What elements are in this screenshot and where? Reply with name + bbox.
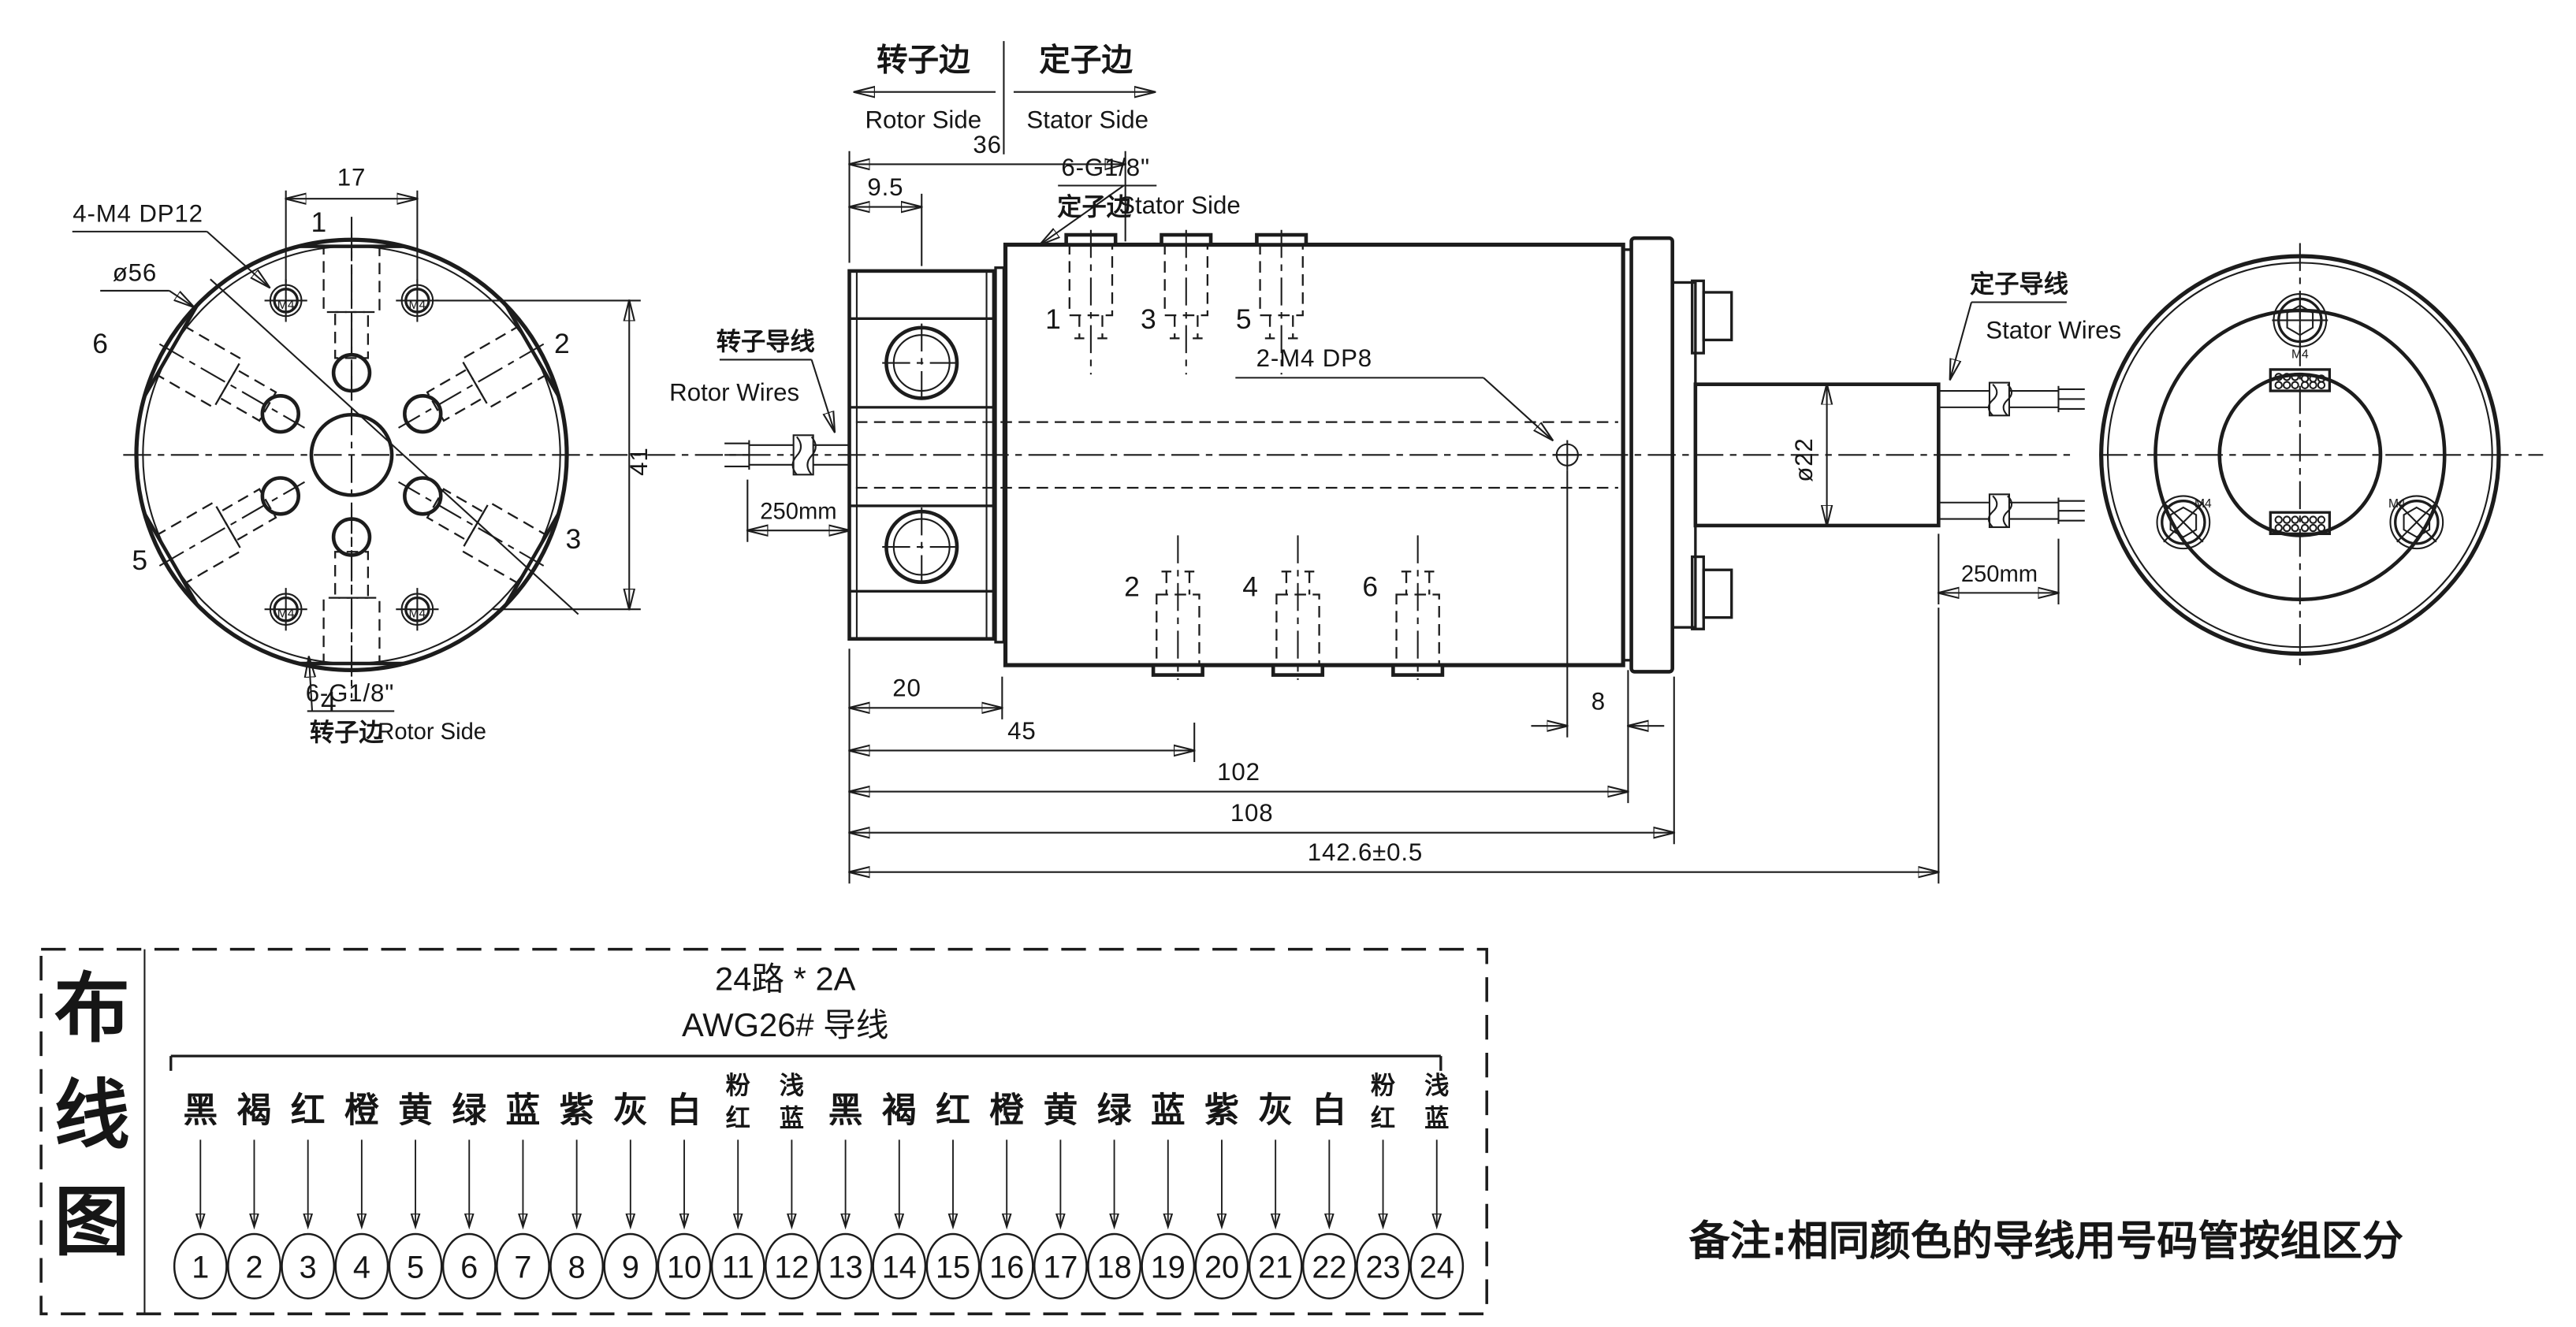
flange-port-2: 2 <box>554 328 570 359</box>
wire-color-label: 粉 <box>1371 1072 1396 1099</box>
channel-number: 14 <box>882 1250 917 1284</box>
flange-port-5: 5 <box>132 545 147 576</box>
wire-color-label: 绿 <box>1097 1091 1132 1129</box>
panel-title-char: 线 <box>54 1070 130 1159</box>
header-stator-en: Stator Side <box>1026 106 1148 134</box>
leader-rotor-wires: 转子导线 Rotor Wires <box>669 328 835 432</box>
side-header: 转子边 Rotor Side 定子边 Stator Side <box>854 41 1155 154</box>
svg-text:9.5: 9.5 <box>867 173 903 201</box>
wiring-column: 蓝7 <box>497 1091 549 1298</box>
wiring-column: 蓝19 <box>1142 1091 1194 1298</box>
dim-dia22: ø22 <box>1790 385 1827 526</box>
wiring-column: 红3 <box>282 1091 334 1298</box>
wiring-column: 黄5 <box>389 1091 441 1298</box>
wire-color-label: 浅 <box>1424 1072 1449 1099</box>
wire-color-label: 黄 <box>398 1091 433 1129</box>
m4-hole-label: M4 <box>409 299 426 312</box>
dim-108: 108 <box>1230 799 1274 827</box>
svg-text:36: 36 <box>973 131 1001 158</box>
panel-title-char: 图 <box>54 1177 130 1266</box>
g18-stator-en: Stator Side <box>1119 191 1241 219</box>
wiring-column: 黑1 <box>174 1091 226 1298</box>
svg-text:转子导线: 转子导线 <box>717 328 815 356</box>
wiring-column: 黑13 <box>819 1091 871 1298</box>
wiring-columns: 黑1褐2红3橙4黄5绿6蓝7紫8灰9白10粉红11浅蓝12黑13褐14红15橙1… <box>174 1072 1463 1299</box>
channel-number: 13 <box>828 1250 863 1284</box>
wire-color-label: 蓝 <box>506 1091 541 1129</box>
channel-number: 1 <box>192 1250 209 1284</box>
port-2-label: 2 <box>1124 571 1140 603</box>
leader-stator-wires: 定子导线 Stator Wires <box>1950 270 2121 379</box>
channel-number: 5 <box>407 1250 424 1284</box>
port-4-label: 4 <box>1242 571 1258 603</box>
wire-color-label: 褐 <box>882 1091 917 1129</box>
wire-color-label: 黑 <box>183 1091 218 1129</box>
dim-total: 142.6±0.5 <box>1308 838 1423 866</box>
wire-color-label: 红 <box>726 1105 750 1132</box>
channel-number: 9 <box>622 1250 639 1284</box>
header-rotor-cn: 转子边 <box>877 43 970 79</box>
leader-g18-stator: 6-G1/8" 定子边 Stator Side <box>1040 154 1240 245</box>
svg-text:17: 17 <box>337 164 366 191</box>
wire-color-label: 蓝 <box>1151 1091 1186 1129</box>
dim-250-left: 250mm <box>747 480 849 542</box>
wiring-column: 黄17 <box>1034 1091 1086 1298</box>
wiring-column: 白22 <box>1303 1091 1355 1298</box>
wire-color-label: 红 <box>1371 1105 1395 1132</box>
channel-number: 24 <box>1420 1250 1454 1284</box>
leader-4-m4-dp12: 4-M4 DP12 <box>73 199 270 287</box>
channel-number: 2 <box>245 1250 262 1284</box>
spec-line-2: AWG26# 导线 <box>682 1006 888 1043</box>
channel-number: 20 <box>1204 1250 1239 1284</box>
wire-color-label: 橙 <box>989 1091 1024 1129</box>
svg-text:250mm: 250mm <box>760 500 836 525</box>
channel-number: 6 <box>460 1250 478 1284</box>
channel-number: 8 <box>568 1250 586 1284</box>
wiring-bracket <box>171 1056 1441 1071</box>
m4-screw-label: M4 <box>2291 348 2309 361</box>
channel-number: 3 <box>300 1250 317 1284</box>
hex-screw-top: M4 <box>2272 292 2328 361</box>
channel-number: 22 <box>1312 1250 1346 1284</box>
wiring-column: 绿18 <box>1088 1091 1140 1298</box>
wire-color-label: 红 <box>291 1091 326 1129</box>
rotor-side-cn: 转子边 <box>310 719 385 747</box>
svg-text:6-G1/8": 6-G1/8" <box>306 679 394 707</box>
m4-hole-label: M4 <box>277 299 295 312</box>
wiring-column: 白10 <box>658 1091 710 1298</box>
flange-port-3: 3 <box>566 523 582 555</box>
flange-port-1: 1 <box>311 206 326 238</box>
m4-screw-label: M4 <box>2194 497 2212 511</box>
rotor-side-en: Rotor Side <box>378 719 486 745</box>
channel-number: 7 <box>514 1250 531 1284</box>
wire-color-label: 紫 <box>1204 1091 1239 1129</box>
svg-text:ø22: ø22 <box>1790 437 1818 481</box>
side-view: 1 3 5 2 4 <box>669 131 2121 883</box>
wiring-column: 粉红23 <box>1357 1072 1409 1299</box>
wiring-column: 浅蓝12 <box>765 1072 817 1299</box>
channel-number: 12 <box>774 1250 809 1284</box>
wire-color-label: 紫 <box>560 1091 594 1129</box>
m4-hole-label: M4 <box>277 608 295 621</box>
wiring-column: 褐2 <box>228 1091 280 1298</box>
remark-note: 备注:相同颜色的导线用号码管按组区分 <box>1689 1217 2403 1265</box>
dim-102: 102 <box>1217 758 1260 786</box>
leader-dia56: ø56 <box>100 258 194 307</box>
dim-8: 8 <box>1591 687 1606 715</box>
wire-color-label: 白 <box>667 1091 702 1129</box>
wire-color-label: 黄 <box>1044 1091 1078 1129</box>
channel-number: 17 <box>1043 1250 1078 1284</box>
wire-color-label: 蓝 <box>1424 1105 1449 1132</box>
wiring-column: 橙16 <box>981 1091 1033 1298</box>
svg-text:250mm: 250mm <box>1961 562 2038 587</box>
wiring-column: 浅蓝24 <box>1411 1072 1463 1299</box>
svg-text:2-M4 DP8: 2-M4 DP8 <box>1256 344 1372 372</box>
wire-color-label: 绿 <box>452 1091 486 1129</box>
wire-color-label: 浅 <box>780 1072 804 1099</box>
wiring-panel: 布 线 图 24路 * 2A AWG26# 导线 黑1褐2红3橙4黄5绿6蓝7紫… <box>41 950 1487 1314</box>
wire-color-label: 红 <box>936 1091 970 1129</box>
slip-ring-technical-drawing: M4 M4 M4 M4 17 <box>0 0 2576 1327</box>
svg-text:Rotor Wires: Rotor Wires <box>669 379 799 407</box>
port-3-label: 3 <box>1141 303 1156 335</box>
svg-text:4-M4 DP12: 4-M4 DP12 <box>73 199 203 227</box>
channel-number: 19 <box>1151 1250 1186 1284</box>
wire-color-label: 粉 <box>726 1072 751 1099</box>
channel-number: 16 <box>989 1250 1024 1284</box>
svg-text:41: 41 <box>625 447 653 475</box>
wiring-column: 紫8 <box>551 1091 603 1298</box>
svg-text:6-G1/8": 6-G1/8" <box>1061 154 1149 181</box>
section-line <box>210 279 579 614</box>
m4-side-hole <box>1553 440 1583 470</box>
wire-color-label: 白 <box>1312 1091 1346 1129</box>
svg-text:定子导线: 定子导线 <box>1970 270 2068 299</box>
svg-text:Stator Wires: Stator Wires <box>1986 316 2121 344</box>
wire-color-label: 褐 <box>237 1091 272 1129</box>
channel-number: 11 <box>722 1250 754 1284</box>
wiring-column: 褐14 <box>873 1091 925 1298</box>
flange-port-6: 6 <box>92 328 108 359</box>
channel-number: 15 <box>936 1250 970 1284</box>
dim-250-right: 250mm <box>1938 533 2058 604</box>
dim-9-5: 9.5 <box>850 173 922 266</box>
wiring-column: 粉红11 <box>712 1072 764 1299</box>
dim-20: 20 <box>892 675 921 702</box>
port-1-label: 1 <box>1045 303 1061 335</box>
wiring-column: 橙4 <box>336 1091 388 1298</box>
wire-color-label: 灰 <box>1258 1091 1293 1129</box>
leader-2-m4-dp8: 2-M4 DP8 <box>1235 344 1552 440</box>
svg-text:ø56: ø56 <box>113 258 157 286</box>
header-rotor-en: Rotor Side <box>865 106 981 134</box>
port-5-label: 5 <box>1236 303 1252 335</box>
wire-color-label: 黑 <box>828 1091 863 1129</box>
dim-45: 45 <box>1007 717 1036 745</box>
header-stator-cn: 定子边 <box>1039 43 1133 79</box>
channel-number: 18 <box>1097 1250 1132 1284</box>
bottom-ports: 2 4 6 <box>1124 535 1439 679</box>
channel-number: 4 <box>353 1250 370 1284</box>
spec-line-1: 24路 * 2A <box>715 961 856 998</box>
port-6-label: 6 <box>1362 571 1378 603</box>
wire-color-label: 蓝 <box>780 1105 804 1132</box>
wiring-column: 紫20 <box>1196 1091 1248 1298</box>
wiring-column: 绿6 <box>443 1091 495 1298</box>
wire-color-label: 灰 <box>613 1091 648 1129</box>
channel-number: 23 <box>1366 1250 1401 1284</box>
wiring-column: 红15 <box>927 1091 979 1298</box>
m4-screw-label: M4 <box>2388 497 2406 511</box>
wiring-column: 灰9 <box>605 1091 657 1298</box>
wire-color-label: 橙 <box>344 1091 379 1129</box>
channel-number: 10 <box>667 1250 702 1284</box>
m4-hole-label: M4 <box>409 608 426 621</box>
wiring-column: 灰21 <box>1249 1091 1301 1298</box>
channel-number: 21 <box>1258 1250 1293 1284</box>
panel-title-char: 布 <box>54 964 130 1053</box>
